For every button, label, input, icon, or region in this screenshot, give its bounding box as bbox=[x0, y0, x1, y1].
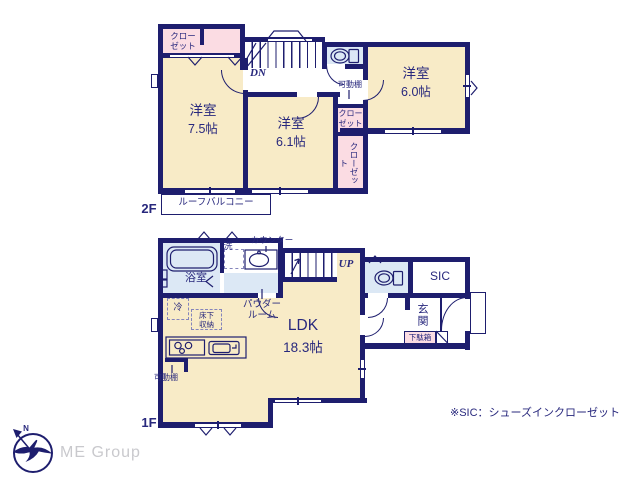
wall bbox=[280, 253, 285, 278]
shelf-label: 可動棚 bbox=[148, 373, 184, 383]
staircase-1f bbox=[285, 253, 337, 277]
wall bbox=[405, 293, 410, 310]
shelf-label: 可動棚 bbox=[333, 80, 367, 90]
room-size: 7.5帖 bbox=[173, 122, 233, 137]
shoe-box-label: 下駄箱 bbox=[404, 333, 436, 342]
compass-north-label: N bbox=[20, 424, 32, 434]
wall bbox=[184, 358, 188, 372]
powder-room-area bbox=[224, 273, 278, 293]
room-name: 洋室 bbox=[261, 116, 321, 132]
wall bbox=[362, 257, 470, 262]
room-size: 6.0帖 bbox=[386, 85, 446, 100]
laundry-label: 洗 bbox=[221, 241, 235, 252]
wall bbox=[363, 42, 368, 80]
window-tick bbox=[217, 421, 219, 429]
sic-footnote: ※SIC：シューズインクローゼット bbox=[450, 407, 630, 420]
toilet-room-2f bbox=[327, 47, 363, 64]
wall bbox=[338, 132, 363, 136]
company-logo-bird bbox=[13, 429, 53, 472]
window bbox=[268, 38, 312, 43]
wall bbox=[280, 248, 365, 253]
wall bbox=[280, 277, 337, 282]
room-name: 洋室 bbox=[173, 103, 233, 119]
counter-label: カウンター bbox=[250, 235, 294, 245]
room-size: 18.3帖 bbox=[268, 340, 338, 356]
closet-label: クローゼット bbox=[338, 109, 363, 128]
door-arc bbox=[368, 298, 388, 318]
washing-machine bbox=[224, 249, 244, 269]
window-tick bbox=[297, 397, 299, 405]
closet-label: クローゼット bbox=[343, 139, 359, 187]
wall bbox=[243, 90, 248, 188]
stairs-down-label: DN bbox=[243, 67, 273, 80]
company-logo-text: ME Group bbox=[60, 443, 180, 462]
sic-label: SIC bbox=[420, 269, 460, 283]
window-tick bbox=[412, 127, 414, 135]
entrance-porch bbox=[470, 292, 486, 334]
closet-label: クローゼット bbox=[168, 31, 198, 51]
wall bbox=[158, 238, 163, 428]
closet-opening bbox=[170, 54, 234, 59]
wall bbox=[200, 24, 204, 45]
room-name: 洋室 bbox=[386, 66, 446, 82]
entrance-door-arc bbox=[441, 297, 467, 330]
vent-mark bbox=[151, 318, 158, 332]
balcony-label: ルーフバルコニー bbox=[161, 197, 271, 208]
powder-room-label: パウダールーム bbox=[240, 299, 284, 322]
window-tick bbox=[279, 187, 281, 195]
door-arc bbox=[365, 318, 384, 337]
staircase-2f bbox=[245, 42, 322, 68]
floor-label-1f: 1F bbox=[138, 415, 160, 431]
wall bbox=[322, 42, 470, 47]
vent-mark bbox=[151, 74, 158, 88]
toilet-room-1f bbox=[365, 262, 408, 293]
wall bbox=[408, 262, 413, 293]
wall bbox=[158, 24, 163, 194]
floor-plan-canvas: 2F 洋室 7.5帖 洋室 6.1帖 洋室 6.0帖 クローゼット クローゼット… bbox=[0, 0, 640, 480]
stairs-up-label: UP bbox=[334, 258, 358, 271]
wall bbox=[245, 92, 297, 97]
bathroom-area bbox=[163, 243, 220, 293]
shoe-box-side bbox=[436, 331, 448, 344]
window-tick bbox=[463, 85, 471, 87]
wall bbox=[363, 100, 368, 188]
bath-label: 浴室 bbox=[176, 272, 216, 285]
entrance-label: 玄関 bbox=[413, 299, 428, 331]
floor-label-2f: 2F bbox=[138, 201, 160, 217]
room-size: 6.1帖 bbox=[261, 135, 321, 150]
window-tick bbox=[358, 368, 366, 370]
wall bbox=[338, 104, 363, 108]
underfloor-storage-label: 床下収納 bbox=[198, 311, 215, 329]
fridge-label: 冷 bbox=[167, 302, 189, 313]
wall bbox=[362, 343, 470, 349]
wall bbox=[360, 253, 365, 315]
